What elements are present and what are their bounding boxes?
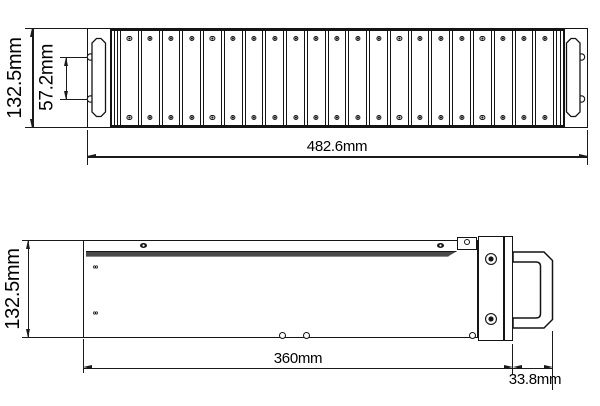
ext-line xyxy=(587,130,588,165)
fin xyxy=(245,31,264,125)
screw-side-lower xyxy=(93,311,98,316)
fin xyxy=(265,31,284,125)
ext-line xyxy=(22,240,83,241)
dim-arrow-up xyxy=(64,57,68,66)
dim-label-front-width: 482.6mm xyxy=(287,139,387,156)
dim-arrow-left xyxy=(513,365,522,369)
panel-cap xyxy=(504,236,513,341)
fin xyxy=(307,31,326,125)
dim-label-front-height: 132.5mm xyxy=(4,28,26,128)
dim-line xyxy=(83,368,513,369)
rack-ear-left xyxy=(87,28,112,128)
fin xyxy=(162,31,181,125)
fin xyxy=(535,31,554,125)
screw-bottom-1 xyxy=(279,332,286,339)
dim-arrow-down xyxy=(30,119,34,128)
dim-arrow-up xyxy=(30,28,34,37)
screw-top-right xyxy=(437,243,444,248)
fin xyxy=(348,31,367,125)
fin xyxy=(182,31,201,125)
ext-line xyxy=(22,337,83,338)
fin xyxy=(328,31,347,125)
fin xyxy=(286,31,305,125)
side-handle-icon xyxy=(513,252,553,328)
dim-label-handle-depth: 33.8mm xyxy=(505,372,565,389)
dim-line xyxy=(32,28,33,128)
fin xyxy=(141,31,160,125)
dim-label-side-height: 132.5mm xyxy=(2,239,24,339)
screw-panel-lower xyxy=(485,313,497,325)
top-rail xyxy=(86,251,458,257)
screw-top-left xyxy=(140,243,147,248)
fin xyxy=(120,31,139,125)
dim-arrow-left xyxy=(83,365,92,369)
screw-bottom-3 xyxy=(469,332,476,339)
fin xyxy=(431,31,450,125)
screw-latch xyxy=(464,239,471,246)
dim-line xyxy=(28,240,29,338)
screw-bottom-2 xyxy=(303,332,310,339)
front-panel xyxy=(478,236,504,341)
ext-line xyxy=(512,344,513,374)
fin xyxy=(494,31,513,125)
fin-array xyxy=(120,31,554,125)
dim-arrow-right xyxy=(544,365,553,369)
dim-arrow-down xyxy=(26,329,30,338)
ext-line xyxy=(87,130,88,165)
fin xyxy=(390,31,409,125)
fin xyxy=(515,31,534,125)
fin xyxy=(411,31,430,125)
fin xyxy=(224,31,243,125)
technical-drawing: 132.5mm 57.2mm 482.6mm xyxy=(0,0,600,406)
screw-panel-upper xyxy=(485,253,497,265)
edge-strip-right xyxy=(556,31,561,125)
fin xyxy=(473,31,492,125)
dim-label-handle-pitch: 57.2mm xyxy=(38,27,59,127)
screw-side-upper xyxy=(93,265,98,270)
fin xyxy=(452,31,471,125)
dim-line xyxy=(87,156,588,157)
dim-label-side-length: 360mm xyxy=(248,351,348,368)
dim-arrow-right xyxy=(504,365,513,369)
edge-strip-left xyxy=(114,31,119,125)
dim-arrow-up xyxy=(26,240,30,249)
fin xyxy=(203,31,222,125)
rack-ear-right xyxy=(563,28,588,128)
dim-arrow-left xyxy=(87,154,96,158)
dim-arrow-down xyxy=(64,91,68,100)
dim-arrow-right xyxy=(579,154,588,158)
fin xyxy=(369,31,388,125)
